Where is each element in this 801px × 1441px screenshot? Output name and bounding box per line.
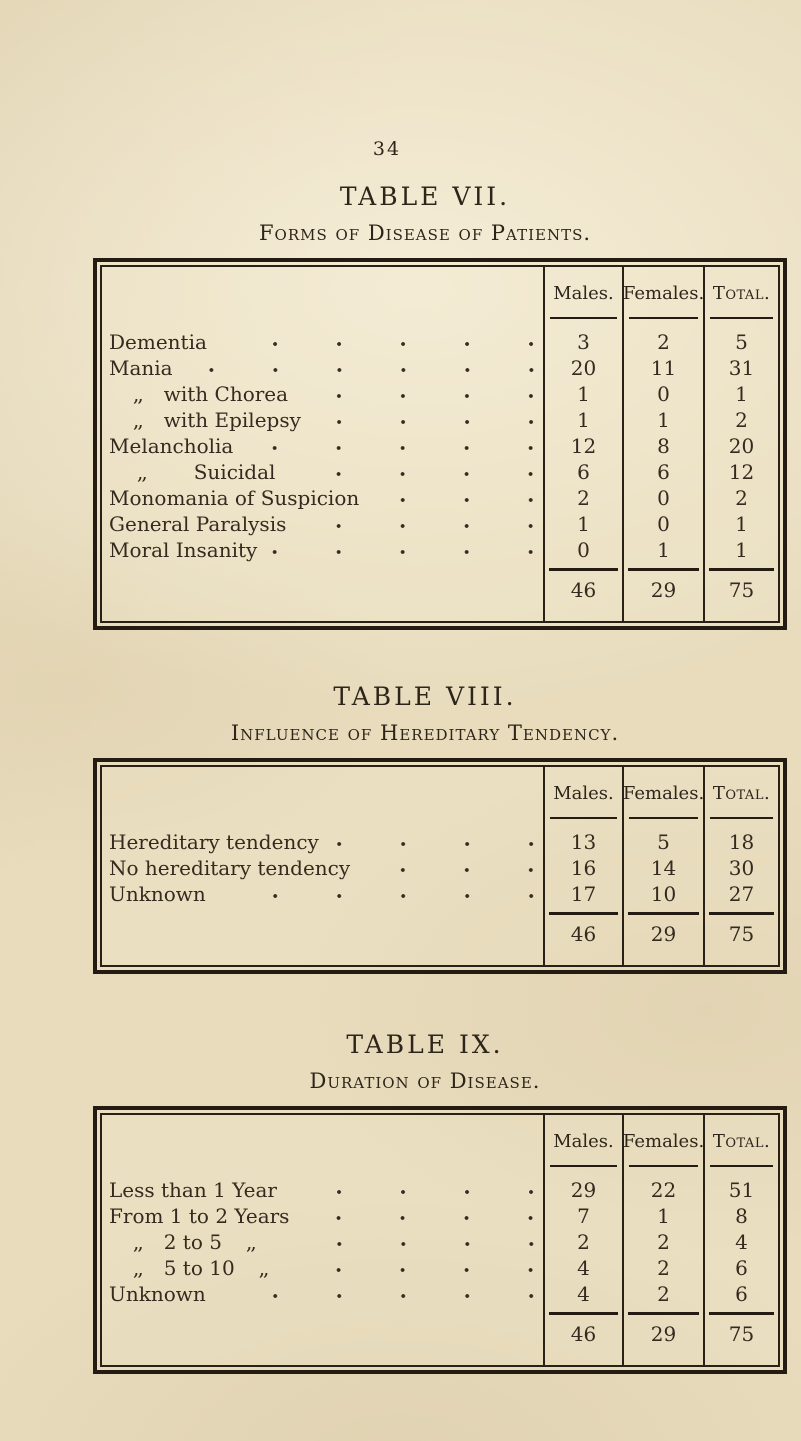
column-header-label: Total.	[713, 1131, 770, 1152]
row-label-cell: ,,with Epilepsy	[102, 407, 543, 433]
totals-value: 75	[703, 575, 778, 605]
document-page: 34 TABLE VII. Forms of Disease of Patien…	[0, 0, 801, 1374]
cell-value: 1	[703, 537, 778, 563]
totals-rule	[709, 912, 774, 915]
totals-label-cell	[102, 919, 543, 949]
column-header: Total.	[703, 767, 778, 819]
cell-value: 1	[543, 407, 622, 433]
cell-value: 2	[622, 1281, 703, 1307]
row-label: Less than 1 Year	[109, 1177, 277, 1203]
cell-value: 6	[703, 1255, 778, 1281]
column-header-label: Females.	[623, 783, 704, 804]
spacer	[102, 1167, 543, 1177]
cell-value: 0	[622, 511, 703, 537]
leader-dots	[183, 355, 541, 381]
row-label: 5 to 10	[164, 1255, 235, 1281]
cell-value: 2	[622, 329, 703, 355]
totals-rule	[549, 568, 618, 571]
row-label: Suicidal	[194, 459, 276, 485]
bottom-padding	[703, 605, 778, 621]
cell-value: 20	[543, 355, 622, 381]
totals-rule-cell	[543, 563, 622, 575]
leader-dots	[360, 855, 541, 881]
header-spacer	[102, 267, 543, 319]
cell-value: 18	[703, 829, 778, 855]
table-outer-border: Males.Females.Total.Dementia325Mania2011…	[93, 258, 787, 630]
table-title: TABLE IX.	[78, 1030, 772, 1059]
cell-value: 16	[543, 855, 622, 881]
cell-value: 4	[703, 1229, 778, 1255]
cell-value: 3	[543, 329, 622, 355]
leader-dots	[311, 407, 541, 433]
column-header: Females.	[622, 267, 703, 319]
header-spacer	[102, 1115, 543, 1167]
leader-dots	[369, 485, 541, 511]
totals-rule	[549, 912, 618, 915]
totals-label-cell	[102, 1319, 543, 1349]
page-number: 34	[40, 138, 734, 160]
totals-rule-cell	[622, 907, 703, 919]
bottom-padding	[102, 605, 543, 621]
cell-value: 1	[543, 511, 622, 537]
column-header: Males.	[543, 767, 622, 819]
totals-rule-spacer	[102, 907, 543, 919]
ditto-mark: ,,	[259, 1255, 268, 1281]
cell-value: 2	[622, 1255, 703, 1281]
table-title: TABLE VIII.	[78, 682, 772, 711]
bottom-padding	[622, 605, 703, 621]
cell-value: 1	[622, 407, 703, 433]
spacer	[102, 819, 543, 829]
ditto-mark: ,,	[133, 1229, 142, 1255]
row-label: No hereditary tendency	[109, 855, 350, 881]
totals-rule-cell	[703, 907, 778, 919]
totals-rule	[709, 568, 774, 571]
totals-rule-cell	[703, 563, 778, 575]
bottom-padding	[703, 1349, 778, 1365]
spacer	[622, 1167, 703, 1177]
table-inner-border: Males.Females.Total.Dementia325Mania2011…	[100, 265, 780, 623]
column-header: Total.	[703, 1115, 778, 1167]
ditto-mark: ,,	[133, 1255, 142, 1281]
column-header-label: Males.	[553, 283, 614, 304]
row-label-cell: ,,5 to 10,,	[102, 1255, 543, 1281]
totals-rule-cell	[543, 907, 622, 919]
table-inner-border: Males.Females.Total.Less than 1 Year2922…	[100, 1113, 780, 1367]
cell-value: 2	[703, 485, 778, 511]
cell-value: 7	[543, 1203, 622, 1229]
totals-rule-cell	[622, 1307, 703, 1319]
leader-dots	[299, 1255, 541, 1281]
cell-value: 1	[703, 381, 778, 407]
header-spacer	[102, 767, 543, 819]
bottom-padding	[543, 1349, 622, 1365]
leader-dots	[287, 1177, 541, 1203]
totals-label-cell	[102, 575, 543, 605]
bottom-padding	[703, 949, 778, 965]
totals-rule-cell	[543, 1307, 622, 1319]
cell-value: 1	[543, 381, 622, 407]
ditto-mark: ,,	[137, 459, 146, 485]
row-label-cell: ,,Suicidal	[102, 459, 543, 485]
cell-value: 12	[703, 459, 778, 485]
totals-rule	[628, 568, 699, 571]
totals-rule-cell	[703, 1307, 778, 1319]
cell-value: 10	[622, 881, 703, 907]
row-label-cell: Mania	[102, 355, 543, 381]
cell-value: 4	[543, 1281, 622, 1307]
data-table: Males.Females.Total.Dementia325Mania2011…	[102, 267, 778, 621]
spacer	[703, 1167, 778, 1177]
data-table: Males.Females.Total.Hereditary tendency1…	[102, 767, 778, 965]
cell-value: 1	[703, 511, 778, 537]
ditto-mark: ,,	[246, 1229, 255, 1255]
leader-dots	[285, 459, 541, 485]
column-header: Females.	[622, 1115, 703, 1167]
cell-value: 5	[703, 329, 778, 355]
totals-rule-cell	[622, 563, 703, 575]
bottom-padding	[622, 949, 703, 965]
cell-value: 0	[543, 537, 622, 563]
cell-value: 6	[543, 459, 622, 485]
leader-dots	[217, 329, 541, 355]
cell-value: 20	[703, 433, 778, 459]
cell-value: 29	[543, 1177, 622, 1203]
totals-value: 29	[622, 575, 703, 605]
table-subtitle: Duration of Disease.	[78, 1069, 772, 1093]
ditto-mark: ,,	[133, 381, 142, 407]
spacer	[622, 319, 703, 329]
leader-dots	[296, 511, 541, 537]
cell-value: 2	[622, 1229, 703, 1255]
table-subtitle: Influence of Hereditary Tendency.	[78, 721, 772, 745]
spacer	[703, 819, 778, 829]
ditto-mark: ,,	[133, 407, 142, 433]
row-label: with Chorea	[164, 381, 288, 407]
row-label-cell: ,,with Chorea	[102, 381, 543, 407]
totals-rule-spacer	[102, 1307, 543, 1319]
row-label-cell: No hereditary tendency	[102, 855, 543, 881]
leader-dots	[299, 1203, 541, 1229]
totals-rule-spacer	[102, 563, 543, 575]
column-header-label: Males.	[553, 1131, 614, 1152]
cell-value: 30	[703, 855, 778, 881]
row-label: 2 to 5	[164, 1229, 222, 1255]
bottom-padding	[102, 949, 543, 965]
leader-dots	[216, 881, 541, 907]
spacer	[543, 319, 622, 329]
table-inner-border: Males.Females.Total.Hereditary tendency1…	[100, 765, 780, 967]
column-header: Males.	[543, 1115, 622, 1167]
totals-value: 46	[543, 919, 622, 949]
totals-rule	[628, 912, 699, 915]
row-label: Monomania of Suspicion	[109, 485, 359, 511]
leader-dots	[243, 433, 541, 459]
row-label: General Paralysis	[109, 511, 286, 537]
column-header-label: Total.	[713, 783, 770, 804]
cell-value: 6	[703, 1281, 778, 1307]
cell-value: 5	[622, 829, 703, 855]
row-label-cell: Monomania of Suspicion	[102, 485, 543, 511]
totals-rule	[549, 1312, 618, 1315]
column-header: Females.	[622, 767, 703, 819]
row-label-cell: Unknown	[102, 1281, 543, 1307]
row-label-cell: Less than 1 Year	[102, 1177, 543, 1203]
table-section: TABLE VII. Forms of Disease of Patients.…	[93, 182, 787, 630]
spacer	[622, 819, 703, 829]
row-label-cell: Melancholia	[102, 433, 543, 459]
leader-dots	[287, 1229, 541, 1255]
cell-value: 2	[543, 485, 622, 511]
leader-dots	[329, 829, 541, 855]
cell-value: 13	[543, 829, 622, 855]
bottom-padding	[622, 1349, 703, 1365]
table-section: TABLE VIII. Influence of Hereditary Tend…	[93, 682, 787, 974]
leader-dots	[267, 537, 541, 563]
row-label: Unknown	[109, 881, 206, 907]
totals-rule	[709, 1312, 774, 1315]
cell-value: 31	[703, 355, 778, 381]
row-label: with Epilepsy	[164, 407, 301, 433]
row-label-cell: From 1 to 2 Years	[102, 1203, 543, 1229]
cell-value: 0	[622, 485, 703, 511]
bottom-padding	[543, 605, 622, 621]
column-header: Males.	[543, 267, 622, 319]
cell-value: 22	[622, 1177, 703, 1203]
column-header: Total.	[703, 267, 778, 319]
cell-value: 11	[622, 355, 703, 381]
data-table: Males.Females.Total.Less than 1 Year2922…	[102, 1115, 778, 1365]
table-outer-border: Males.Females.Total.Hereditary tendency1…	[93, 758, 787, 974]
totals-value: 29	[622, 919, 703, 949]
bottom-padding	[102, 1349, 543, 1365]
cell-value: 1	[622, 537, 703, 563]
totals-rule	[628, 1312, 699, 1315]
table-outer-border: Males.Females.Total.Less than 1 Year2922…	[93, 1106, 787, 1374]
cell-value: 14	[622, 855, 703, 881]
totals-value: 29	[622, 1319, 703, 1349]
table-subtitle: Forms of Disease of Patients.	[78, 221, 772, 245]
row-label-cell: Unknown	[102, 881, 543, 907]
column-header-label: Males.	[553, 783, 614, 804]
table-title: TABLE VII.	[78, 182, 772, 211]
totals-value: 46	[543, 575, 622, 605]
cell-value: 2	[703, 407, 778, 433]
row-label: Dementia	[109, 329, 207, 355]
cell-value: 51	[703, 1177, 778, 1203]
cell-value: 0	[622, 381, 703, 407]
cell-value: 8	[703, 1203, 778, 1229]
row-label: Moral Insanity	[109, 537, 257, 563]
cell-value: 6	[622, 459, 703, 485]
table-section: TABLE IX. Duration of Disease. Males.Fem…	[93, 1030, 787, 1374]
spacer	[102, 319, 543, 329]
row-label-cell: Hereditary tendency	[102, 829, 543, 855]
cell-value: 12	[543, 433, 622, 459]
cell-value: 1	[622, 1203, 703, 1229]
row-label-cell: ,,2 to 5,,	[102, 1229, 543, 1255]
totals-value: 46	[543, 1319, 622, 1349]
leader-dots	[216, 1281, 541, 1307]
row-label: Melancholia	[109, 433, 233, 459]
spacer	[543, 819, 622, 829]
row-label: Hereditary tendency	[109, 829, 319, 855]
row-label-cell: Moral Insanity	[102, 537, 543, 563]
cell-value: 8	[622, 433, 703, 459]
spacer	[543, 1167, 622, 1177]
totals-value: 75	[703, 919, 778, 949]
column-header-label: Females.	[623, 283, 704, 304]
row-label: From 1 to 2 Years	[109, 1203, 289, 1229]
cell-value: 17	[543, 881, 622, 907]
row-label: Mania	[109, 355, 173, 381]
cell-value: 27	[703, 881, 778, 907]
cell-value: 2	[543, 1229, 622, 1255]
row-label-cell: General Paralysis	[102, 511, 543, 537]
totals-value: 75	[703, 1319, 778, 1349]
spacer	[703, 319, 778, 329]
column-header-label: Females.	[623, 1131, 704, 1152]
column-header-label: Total.	[713, 283, 770, 304]
cell-value: 4	[543, 1255, 622, 1281]
bottom-padding	[543, 949, 622, 965]
tables-container: TABLE VII. Forms of Disease of Patients.…	[0, 182, 801, 1374]
row-label: Unknown	[109, 1281, 206, 1307]
row-label-cell: Dementia	[102, 329, 543, 355]
leader-dots	[298, 381, 541, 407]
